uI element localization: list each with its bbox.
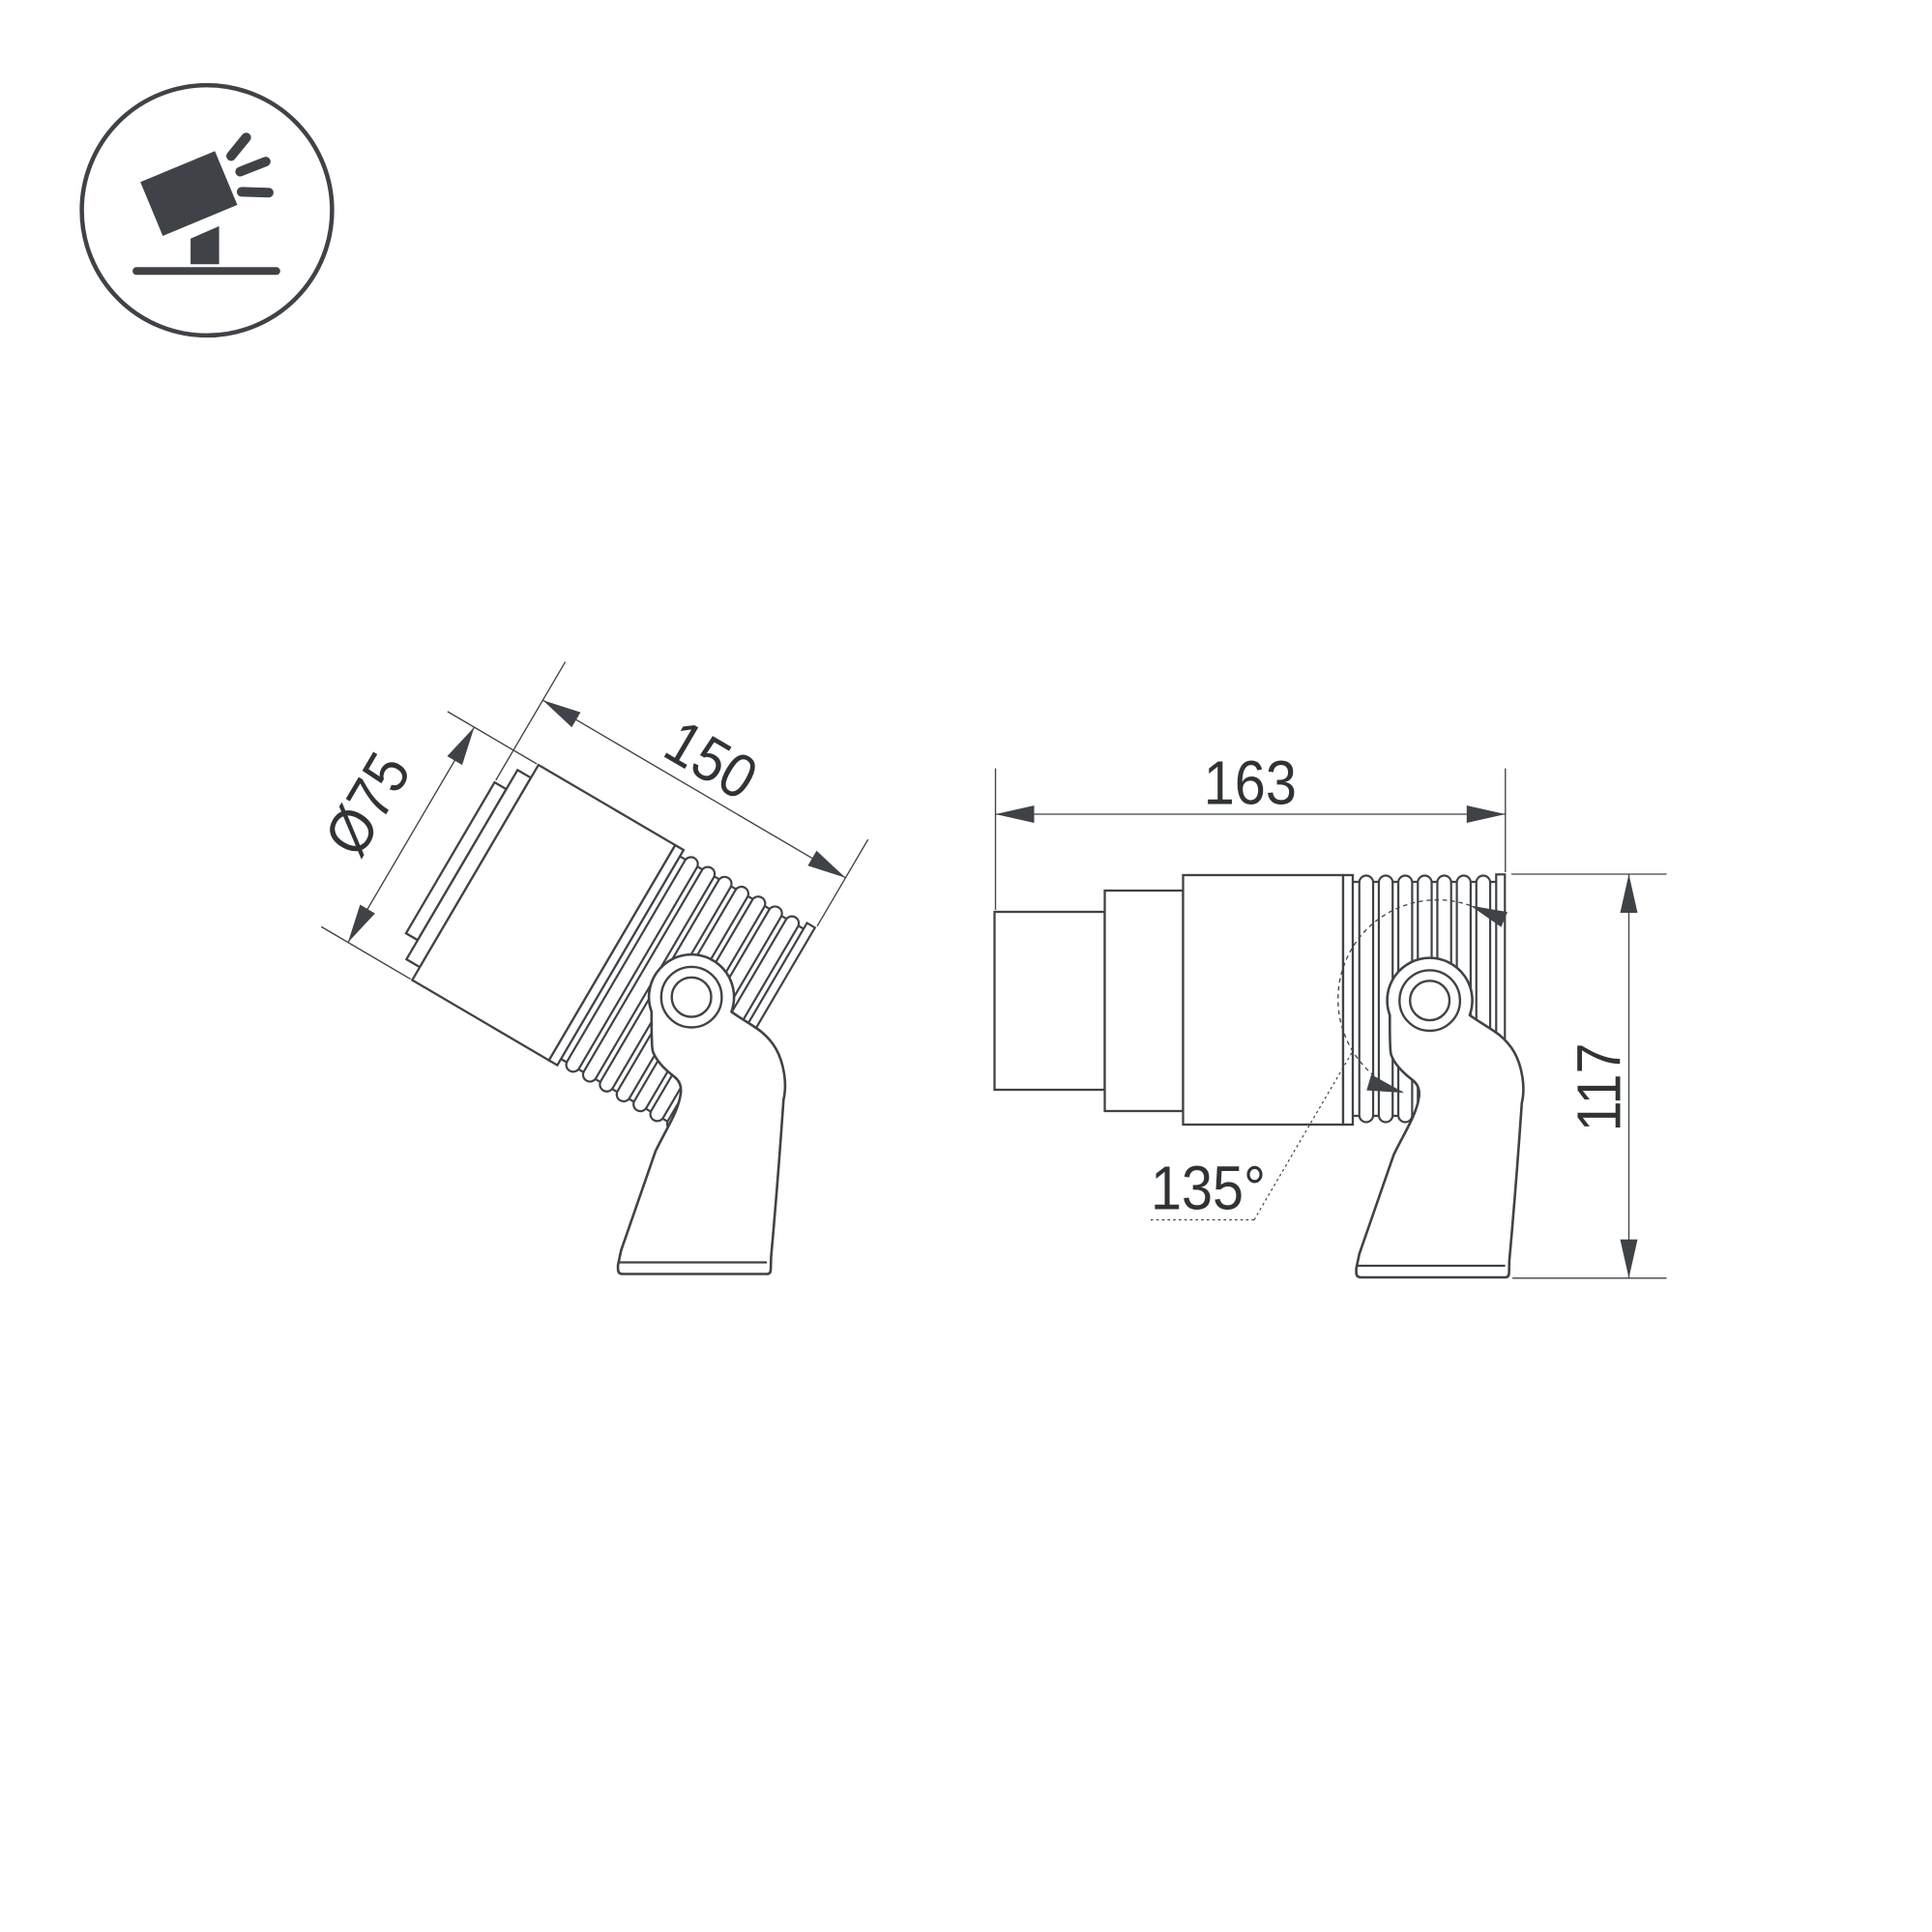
svg-text:135°: 135°: [1151, 1154, 1266, 1222]
svg-text:117: 117: [1565, 1042, 1633, 1131]
svg-text:163: 163: [1204, 748, 1297, 817]
